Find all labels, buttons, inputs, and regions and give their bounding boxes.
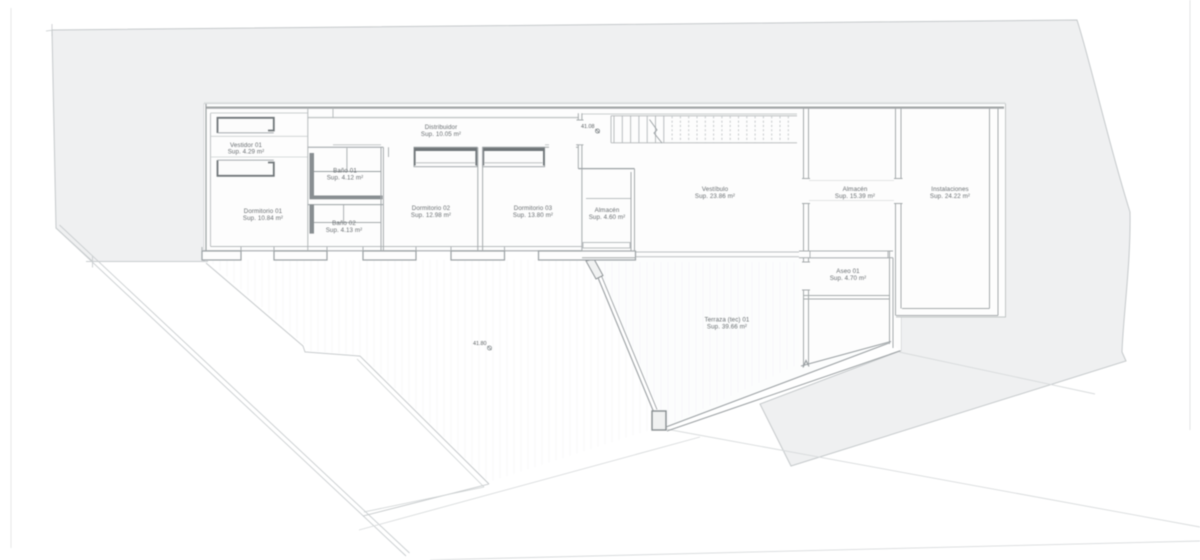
svg-text:Sup. 4.60 m²: Sup. 4.60 m² [589,214,626,221]
svg-text:Instalaciones: Instalaciones [931,186,968,193]
svg-text:Dormitorio 01: Dormitorio 01 [244,208,283,215]
svg-text:Terraza (tec) 01: Terraza (tec) 01 [705,317,750,324]
svg-text:Sup. 23.86 m²: Sup. 23.86 m² [695,193,735,200]
svg-text:Baño 02: Baño 02 [332,220,356,227]
svg-text:Dormitorio 02: Dormitorio 02 [412,205,451,212]
svg-text:Dormitorio 03: Dormitorio 03 [514,205,553,212]
svg-text:Sup. 4.70 m²: Sup. 4.70 m² [830,275,867,282]
svg-text:Sup. 4.29 m²: Sup. 4.29 m² [228,149,265,156]
svg-text:Aseo 01: Aseo 01 [836,268,860,275]
svg-text:Sup. 4.13 m²: Sup. 4.13 m² [326,227,363,234]
svg-text:Sup. 12.98 m²: Sup. 12.98 m² [411,212,451,219]
svg-text:Sup. 15.39 m²: Sup. 15.39 m² [835,193,875,200]
svg-text:Sup. 10.05 m²: Sup. 10.05 m² [421,131,461,138]
svg-text:Almacén: Almacén [843,186,868,193]
svg-text:Sup. 10.84 m²: Sup. 10.84 m² [243,215,283,222]
svg-text:Baño 01: Baño 01 [333,168,357,175]
svg-text:Vestíbulo: Vestíbulo [702,186,729,193]
svg-text:Sup. 13.80 m²: Sup. 13.80 m² [513,212,553,219]
svg-text:Sup. 24.22 m²: Sup. 24.22 m² [930,193,970,200]
svg-text:Almacén: Almacén [595,207,620,214]
svg-text:41.80: 41.80 [473,341,487,347]
svg-text:Sup. 39.66 m²: Sup. 39.66 m² [707,324,747,331]
svg-text:Sup. 4.12 m²: Sup. 4.12 m² [327,175,364,182]
svg-text:Distribuidor: Distribuidor [425,124,458,131]
svg-text:41.08: 41.08 [581,124,595,130]
